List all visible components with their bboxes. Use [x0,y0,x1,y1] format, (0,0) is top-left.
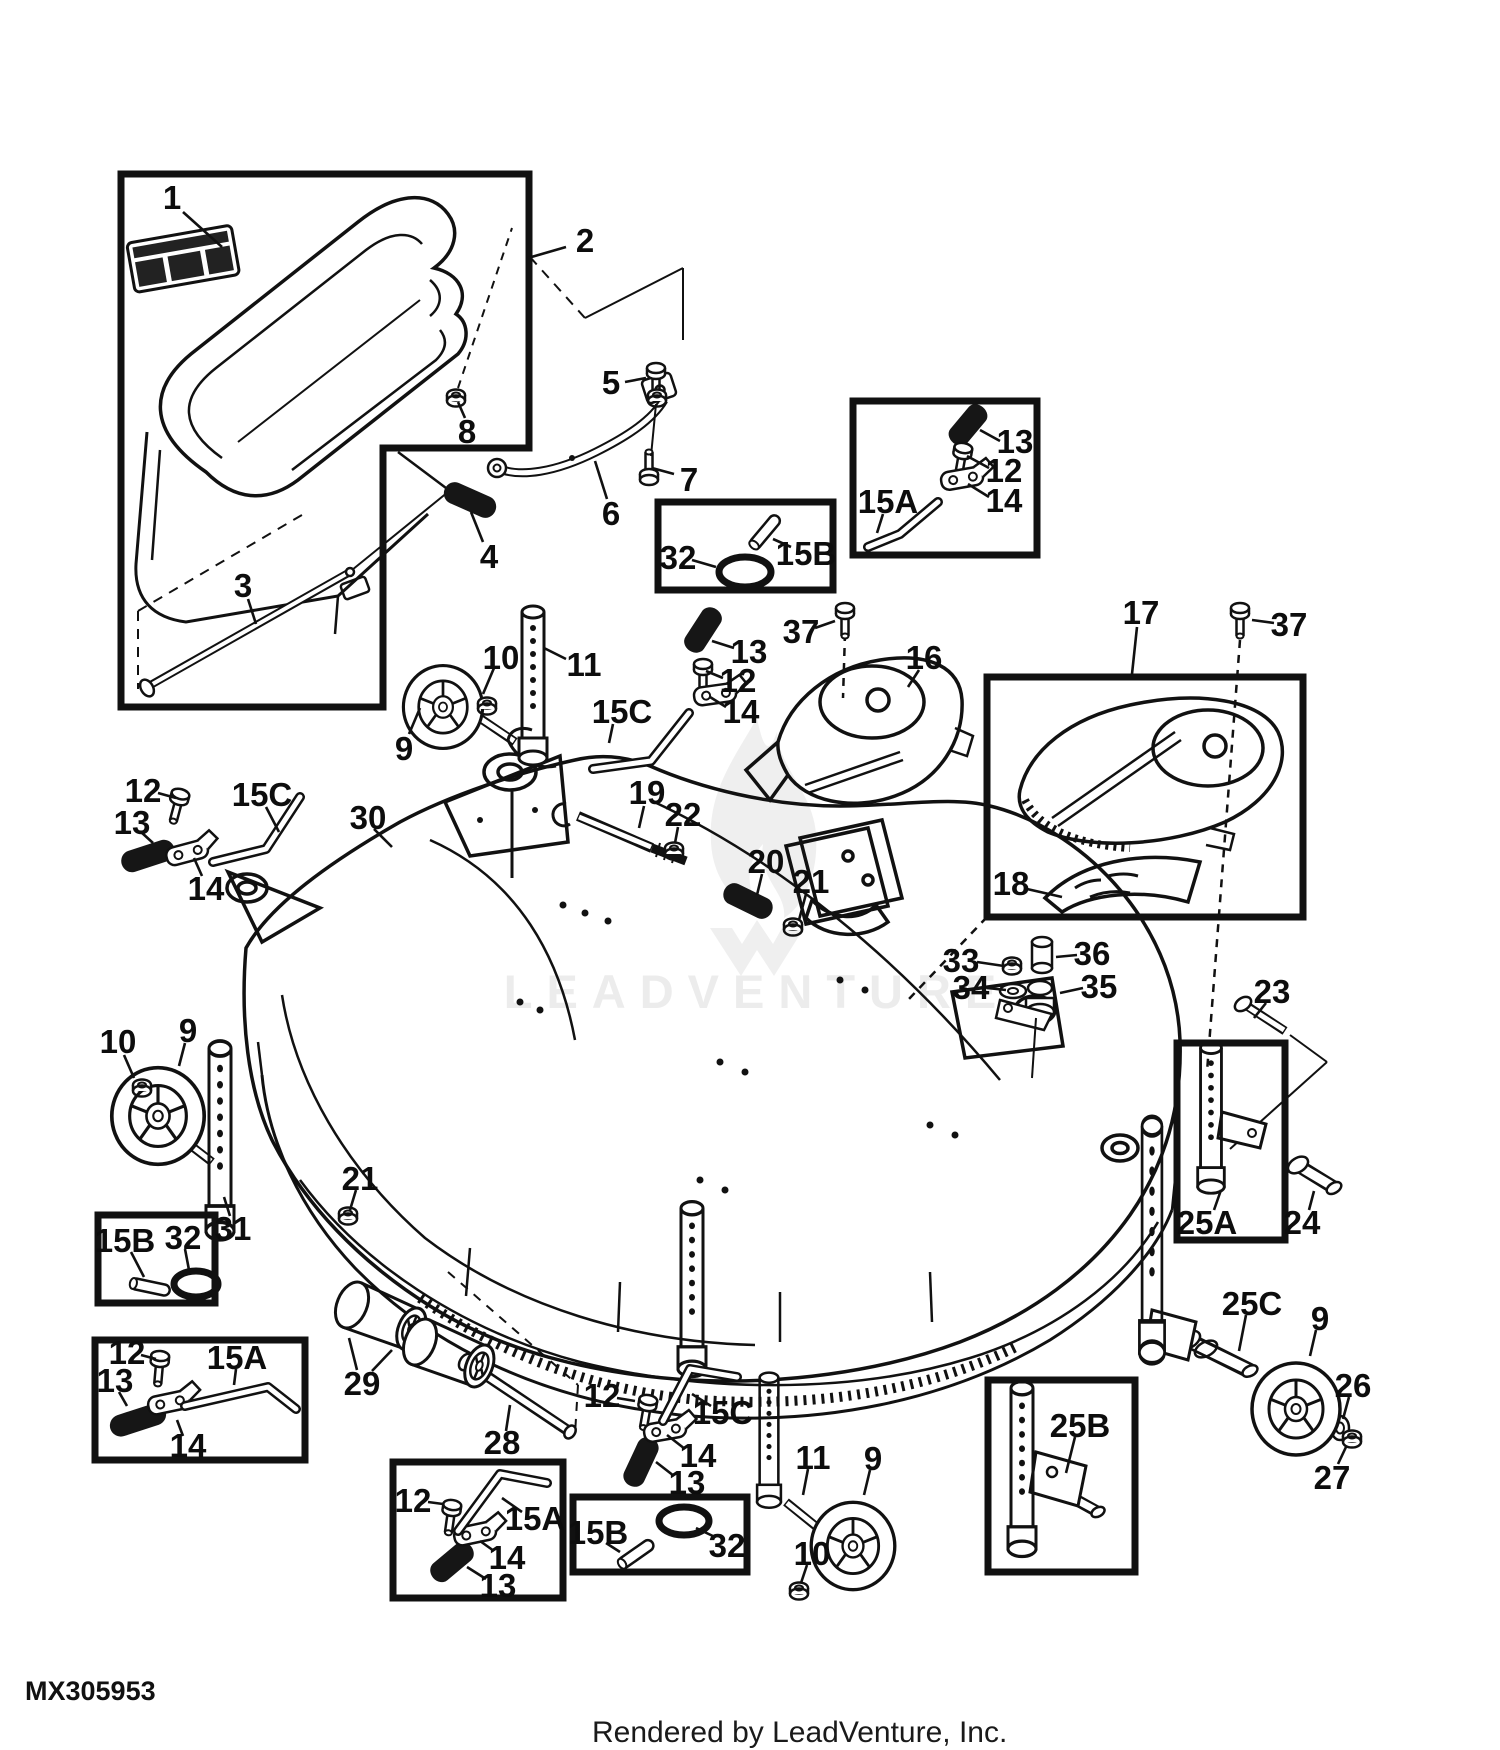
callout-label-9: 9 [1311,1300,1329,1337]
callout-label-14: 14 [986,482,1023,519]
nut [1003,958,1021,975]
callout-label-15C: 15C [693,1394,754,1431]
callout-label-25B: 25B [1050,1407,1111,1444]
callout-label-15B: 15B [95,1222,156,1259]
callout-label-15C: 15C [232,776,293,813]
inset-box-cover-17 [987,677,1303,917]
callout-label-13: 13 [97,1362,134,1399]
inset-boxes [95,174,1303,1598]
callout-label-36: 36 [1074,935,1111,972]
pin-15b [129,1277,171,1296]
callout-label-21: 21 [793,863,830,900]
callout-label-10: 10 [100,1023,137,1060]
callout-label-14: 14 [723,693,760,730]
callout-label-15B: 15B [568,1514,629,1551]
callout-label-1: 1 [163,179,181,216]
callout-label-24: 24 [1284,1204,1321,1241]
anti-scalp-roller-29 [397,1314,500,1393]
callout-label-27: 27 [1314,1459,1351,1496]
callout-label-28: 28 [484,1424,521,1461]
callout-label-32: 32 [165,1219,202,1256]
leader-line [1027,889,1062,897]
callout-label-13: 13 [669,1464,706,1501]
callout-label-25A: 25A [1177,1204,1238,1241]
nut [447,390,465,407]
callout-label-29: 29 [344,1365,381,1402]
callout-label-22: 22 [665,796,702,833]
bolt-7 [640,450,658,486]
callout-label-3: 3 [234,567,252,604]
decal-18 [1045,858,1200,913]
bolt-12 [149,1350,170,1387]
callout-label-19: 19 [629,774,666,811]
callout-label-13: 13 [114,804,151,841]
nut [339,1208,357,1225]
gauge-wheel-9 [403,666,482,749]
callout-label-14: 14 [188,870,225,907]
callout-label-32: 32 [660,539,697,576]
callout-label-20: 20 [748,843,785,880]
callout-label-2: 2 [576,222,594,259]
gauge-wheel-9 [1252,1363,1340,1455]
gauge-wheel-9 [112,1068,204,1165]
callout-label-25C: 25C [1222,1285,1283,1322]
callout-label-10: 10 [483,639,520,676]
chute-hardware [137,228,683,699]
callout-label-15A: 15A [505,1500,566,1537]
callout-label-7: 7 [680,461,698,498]
wheel-shaft [678,1202,706,1377]
bolt-12 [1231,603,1249,639]
callout-label-31: 31 [215,1210,252,1247]
nut [478,698,496,715]
callout-label-15B: 15B [776,535,837,572]
callout-label-30: 30 [350,799,387,836]
callout-label-37: 37 [1271,606,1308,643]
callout-label-12: 12 [395,1482,432,1519]
callout-label-11: 11 [567,646,602,683]
callout-label-18: 18 [993,865,1030,902]
callout-label-35: 35 [1081,968,1118,1005]
wheel-shaft [1139,1117,1164,1363]
callout-label-14: 14 [170,1427,207,1464]
callout-label-37: 37 [783,613,820,650]
callout-label-9: 9 [864,1440,882,1477]
callout-label-4: 4 [480,538,499,575]
callout-label-9: 9 [395,730,413,767]
callout-label-26: 26 [1335,1367,1372,1404]
leader-line [1132,627,1137,674]
exploded-parts-diagram: LEADVENTURE [0,0,1500,1750]
leader-line [595,461,607,499]
o-ring-32 [719,557,771,587]
callout-label-16: 16 [906,639,943,676]
leader-line [528,247,566,258]
leader-line [1060,988,1083,993]
warning-decal [127,225,240,293]
nut [1343,1431,1361,1448]
callout-label-9: 9 [179,1012,197,1049]
spring-13 [945,400,992,450]
callout-label-5: 5 [602,364,620,401]
callout-label-23: 23 [1254,973,1291,1010]
callout-label-13: 13 [480,1567,517,1604]
bolt-12 [164,787,191,826]
callout-label-6: 6 [602,495,620,532]
figure-code: MX305953 [25,1676,156,1706]
wheel-shaft [1008,1382,1036,1557]
spring-13 [440,479,499,522]
parts-diagram-page: LEADVENTURE [0,0,1500,1750]
callout-label-15C: 15C [592,693,653,730]
wheel-shaft [757,1373,781,1508]
callout-label-8: 8 [458,413,476,450]
callout-label-34: 34 [953,969,990,1006]
o-ring-32 [174,1271,218,1297]
callout-label-15A: 15A [858,483,919,520]
wheel-shaft [519,606,547,765]
nut [790,1583,808,1600]
callout-label-17: 17 [1123,594,1160,631]
belt-cover-16 [778,658,962,803]
render-credit: Rendered by LeadVenture, Inc. [592,1716,1007,1749]
discharge-chute-assembly [127,198,466,634]
callout-label-12: 12 [584,1377,621,1414]
callout-label-21: 21 [342,1160,379,1197]
callout-label-15A: 15A [207,1339,268,1376]
spring-13 [680,603,725,656]
bolt-12 [836,603,854,639]
callout-label-11: 11 [796,1439,831,1476]
wheel-shaft [1198,1042,1225,1193]
callout-label-10: 10 [794,1535,831,1572]
callout-label-32: 32 [709,1527,746,1564]
leader-line [544,648,566,659]
